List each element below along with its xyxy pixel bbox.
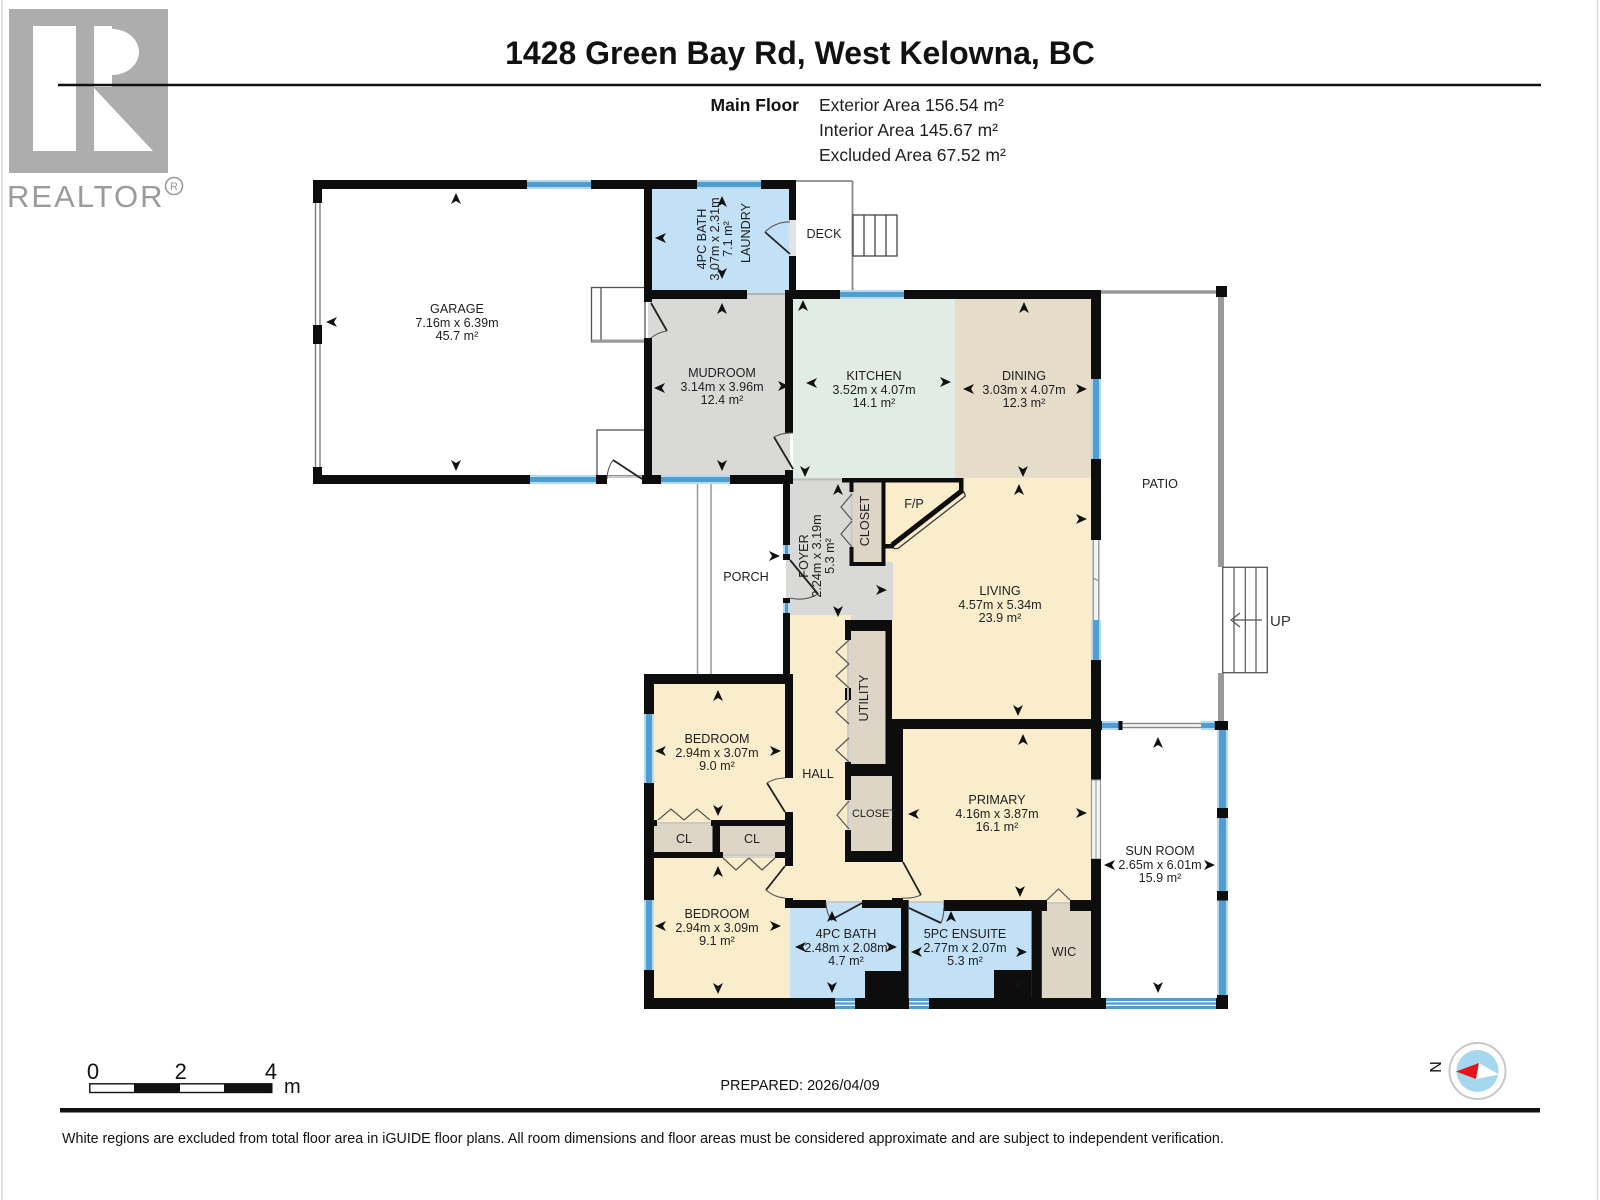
svg-text:CLOSET: CLOSET [858,496,872,547]
svg-text:PREPARED: 2026/04/09: PREPARED: 2026/04/09 [720,1078,879,1094]
svg-text:LAUNDRY: LAUNDRY [739,202,753,263]
svg-text:White regions are excluded fro: White regions are excluded from total fl… [62,1131,1224,1147]
svg-text:9.1 m²: 9.1 m² [699,934,735,948]
svg-text:HALL: HALL [802,767,834,781]
svg-text:N: N [1428,1061,1445,1073]
svg-text:Excluded Area 67.52 m²: Excluded Area 67.52 m² [819,145,1006,165]
svg-text:2: 2 [175,1059,187,1084]
svg-text:BEDROOM: BEDROOM [684,907,749,921]
svg-text:DECK: DECK [807,227,843,241]
svg-text:F/P: F/P [904,497,924,511]
svg-text:2.65m x 6.01m: 2.65m x 6.01m [1118,858,1201,872]
svg-text:5PC ENSUITE: 5PC ENSUITE [924,927,1007,941]
svg-text:4PC BATH: 4PC BATH [816,927,877,941]
svg-text:4PC BATH: 4PC BATH [695,209,709,270]
svg-text:3.14m x 3.96m: 3.14m x 3.96m [680,380,763,394]
svg-text:PATIO: PATIO [1142,477,1178,491]
svg-text:GARAGE: GARAGE [430,302,484,316]
svg-text:2.94m x 3.09m: 2.94m x 3.09m [675,921,758,935]
svg-text:2.77m x 2.07m: 2.77m x 2.07m [923,941,1006,955]
svg-text:FOYER: FOYER [797,534,811,577]
svg-text:3.52m x 4.07m: 3.52m x 4.07m [832,383,915,397]
svg-text:LIVING: LIVING [979,584,1020,598]
svg-text:Exterior Area 156.54 m²: Exterior Area 156.54 m² [819,95,1004,115]
svg-text:4.16m x 3.87m: 4.16m x 3.87m [955,807,1038,821]
svg-text:UP: UP [1270,613,1291,630]
svg-text:2.94m x 3.07m: 2.94m x 3.07m [675,746,758,760]
svg-text:DINING: DINING [1002,369,1046,383]
svg-text:12.4 m²: 12.4 m² [701,393,744,407]
svg-text:16.1 m²: 16.1 m² [976,820,1019,834]
svg-text:2.24m x 3.19m: 2.24m x 3.19m [810,514,824,597]
svg-text:PORCH: PORCH [723,570,768,584]
svg-text:CL: CL [676,832,692,846]
svg-text:CL: CL [744,832,760,846]
svg-text:7.1 m²: 7.1 m² [721,221,735,257]
svg-text:MUDROOM: MUDROOM [688,366,756,380]
svg-text:4: 4 [265,1059,277,1084]
svg-text:3.07m x 2.31m: 3.07m x 2.31m [708,197,722,280]
svg-text:1428 Green Bay Rd, West Kelown: 1428 Green Bay Rd, West Kelowna, BC [505,35,1095,71]
svg-text:2.48m x 2.08m: 2.48m x 2.08m [804,941,887,955]
svg-text:CLOSET: CLOSET [852,808,896,820]
svg-text:15.9 m²: 15.9 m² [1139,871,1182,885]
svg-text:7.16m x 6.39m: 7.16m x 6.39m [415,316,498,330]
svg-text:23.9 m²: 23.9 m² [979,611,1022,625]
svg-text:Interior Area 145.67 m²: Interior Area 145.67 m² [819,120,998,140]
svg-text:5.3 m²: 5.3 m² [823,538,837,574]
svg-text:0: 0 [87,1059,99,1084]
svg-text:SUN ROOM: SUN ROOM [1125,844,1194,858]
svg-text:12.3 m²: 12.3 m² [1003,396,1046,410]
svg-text:R: R [170,181,178,193]
svg-text:m: m [284,1076,301,1098]
svg-text:14.1 m²: 14.1 m² [853,396,896,410]
svg-text:5.3 m²: 5.3 m² [947,954,983,968]
svg-text:Main Floor: Main Floor [711,95,800,115]
svg-text:9.0 m²: 9.0 m² [699,759,735,773]
svg-text:4.57m x 5.34m: 4.57m x 5.34m [958,598,1041,612]
svg-text:REALTOR: REALTOR [7,179,165,214]
svg-text:PRIMARY: PRIMARY [968,793,1026,807]
svg-text:3.03m x 4.07m: 3.03m x 4.07m [982,383,1065,397]
svg-text:WIC: WIC [1052,945,1076,959]
svg-text:45.7 m²: 45.7 m² [436,329,479,343]
svg-text:KITCHEN: KITCHEN [846,369,901,383]
svg-text:UTILITY: UTILITY [857,674,871,721]
svg-text:4.7 m²: 4.7 m² [828,954,864,968]
svg-text:BEDROOM: BEDROOM [684,732,749,746]
